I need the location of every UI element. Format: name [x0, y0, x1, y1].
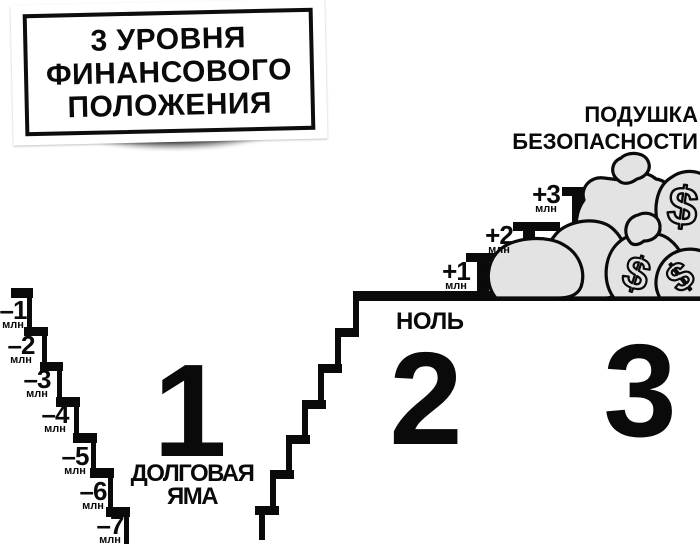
debt-step-label-6: –6 млн [73, 481, 113, 512]
debt-pit-caption-line-1: ДОЛГОВАЯ [112, 462, 272, 485]
debt-step-label-2: –2 млн [1, 335, 41, 366]
debt-step-label-3: –3 млн [17, 369, 57, 400]
debt-step-label-7: –7 млн [90, 515, 130, 544]
level-3-number: 3 [594, 325, 686, 457]
title-line-1: 3 УРОВНЯ [90, 21, 246, 58]
debt-pit-caption-line-2: ЯМА [112, 485, 272, 508]
title-line-2: ФИНАНСОВОГО [46, 53, 293, 92]
debt-step-value: –7 [90, 515, 130, 535]
gain-step-value: +3 [526, 184, 566, 204]
gain-step-label-3: +3 млн [526, 184, 566, 215]
debt-step-value: –6 [73, 481, 113, 501]
debt-step-label-1: –1 млн [0, 300, 33, 331]
level-1-number: 1 [144, 345, 236, 477]
debt-step-value: –1 [0, 300, 33, 320]
title-line-3: ПОЛОЖЕНИЯ [67, 86, 272, 124]
infographic-canvas: $ $ $ 3 УРОВНЯ ФИНАНСОВОГО ПОЛОЖЕНИЯ ПОД… [0, 0, 700, 544]
debt-step-label-5: –5 млн [55, 446, 95, 477]
debt-step-value: –2 [1, 335, 41, 355]
title-card: 3 УРОВНЯ ФИНАНСОВОГО ПОЛОЖЕНИЯ [10, 0, 327, 146]
debt-step-value: –4 [35, 404, 75, 424]
debt-pit-caption: ДОЛГОВАЯ ЯМА [112, 462, 272, 508]
level-2-number: 2 [380, 333, 472, 465]
debt-step-value: –5 [55, 446, 95, 466]
cushion-heading-line-2: БЕЗОПАСНОСТИ [438, 128, 698, 155]
cushion-heading: ПОДУШКА БЕЗОПАСНОСТИ [438, 101, 698, 155]
debt-step-unit: млн [35, 424, 75, 435]
gain-step-label-2: +2 млн [479, 225, 519, 256]
debt-step-unit: млн [90, 535, 130, 544]
debt-step-value: –3 [17, 369, 57, 389]
gain-step-label-1: +1 млн [436, 261, 476, 292]
title-card-frame: 3 УРОВНЯ ФИНАНСОВОГО ПОЛОЖЕНИЯ [23, 8, 316, 137]
debt-step-label-4: –4 млн [35, 404, 75, 435]
gain-step-value: +2 [479, 225, 519, 245]
dollar-icon: $ [664, 175, 700, 238]
gain-step-value: +1 [436, 261, 476, 281]
cushion-heading-line-1: ПОДУШКА [438, 101, 698, 128]
